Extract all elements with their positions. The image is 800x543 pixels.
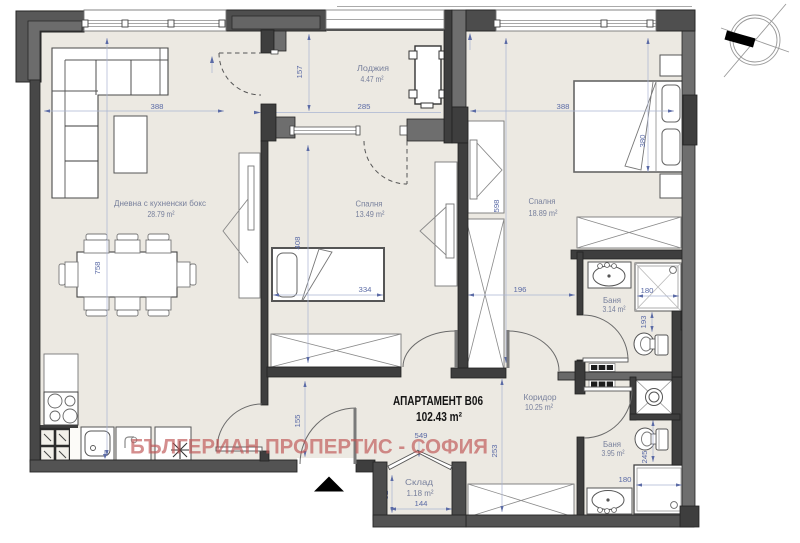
svg-text:10.25 m²: 10.25 m² [525, 402, 553, 412]
svg-text:102.43 m²: 102.43 m² [416, 410, 462, 424]
svg-text:Склад: Склад [405, 477, 433, 487]
svg-text:180: 180 [619, 475, 632, 484]
svg-text:193: 193 [639, 316, 648, 329]
svg-text:388: 388 [557, 102, 570, 111]
svg-text:388: 388 [151, 102, 164, 111]
svg-text:155: 155 [293, 415, 302, 428]
svg-text:Спалня: Спалня [356, 199, 383, 209]
svg-text:253: 253 [490, 445, 499, 458]
svg-text:157: 157 [295, 66, 304, 79]
svg-text:285: 285 [358, 102, 371, 111]
svg-text:380: 380 [638, 135, 647, 148]
svg-text:Коридор: Коридор [524, 392, 557, 402]
svg-text:Спалня: Спалня [529, 196, 556, 206]
svg-text:3.95 m²: 3.95 m² [602, 448, 625, 458]
svg-text:408: 408 [293, 237, 302, 250]
svg-text:Лоджия: Лоджия [357, 63, 389, 73]
svg-text:4.47 m²: 4.47 m² [361, 74, 384, 84]
svg-text:1.18 m²: 1.18 m² [407, 488, 434, 498]
svg-text:18.89 m²: 18.89 m² [529, 208, 558, 218]
svg-text:334: 334 [359, 285, 372, 294]
svg-text:13.49 m²: 13.49 m² [356, 209, 385, 219]
svg-text:196: 196 [514, 285, 527, 294]
svg-text:180: 180 [641, 286, 654, 295]
svg-text:3.14 m²: 3.14 m² [603, 304, 626, 314]
svg-text:144: 144 [415, 499, 428, 508]
svg-text:245: 245 [640, 451, 649, 464]
svg-text:Дневна с кухненски бокс: Дневна с кухненски бокс [114, 198, 207, 208]
svg-text:БЪЛГЕРИАН ПРОПЕРТИС - СОФИЯ: БЪЛГЕРИАН ПРОПЕРТИС - СОФИЯ [130, 435, 488, 459]
svg-text:28.79 m²: 28.79 m² [148, 209, 175, 219]
svg-text:598: 598 [492, 200, 501, 213]
svg-text:АПАРТАМЕНТ B06: АПАРТАМЕНТ B06 [393, 394, 483, 408]
svg-text:758: 758 [93, 262, 102, 275]
